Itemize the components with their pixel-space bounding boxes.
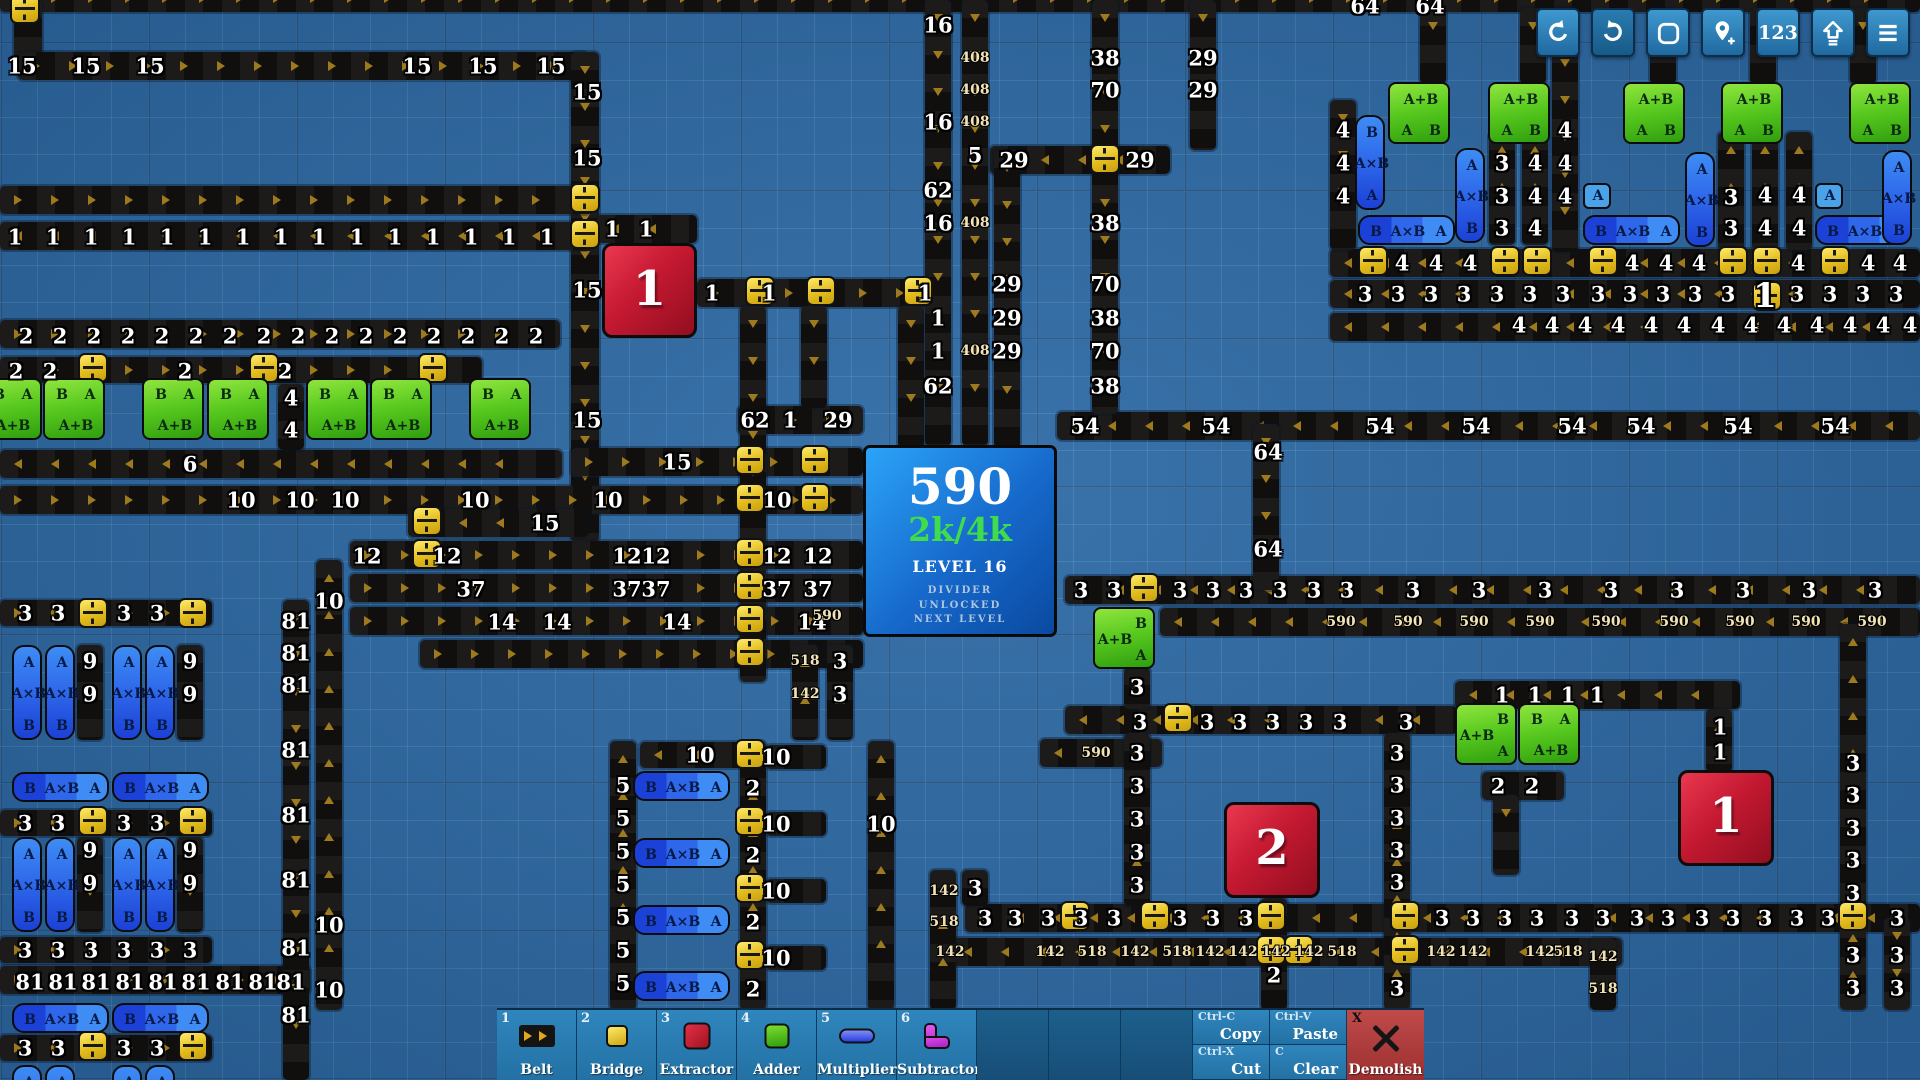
item-number: 3 <box>1530 908 1545 929</box>
belt-arrow-icon <box>828 0 836 3</box>
adder-machine[interactable]: BAA+B <box>1518 703 1580 765</box>
multiplier-machine[interactable]: BA×BA <box>633 971 730 1001</box>
tool-subtractor[interactable]: 6Subtractor <box>897 1010 977 1080</box>
belt[interactable] <box>801 306 827 408</box>
port-label: B <box>1696 225 1708 241</box>
belt-arrow-icon <box>1359 617 1367 627</box>
belt-arrow-icon <box>1848 934 1858 942</box>
item-number: 81 <box>281 611 310 632</box>
item-number: 3 <box>1790 908 1805 929</box>
item-number: 29 <box>999 150 1028 171</box>
item-number: 10 <box>593 490 622 511</box>
item-number: 3 <box>18 813 33 834</box>
waypoint-icon <box>1710 19 1737 46</box>
item-number: 590 <box>1525 615 1554 629</box>
item-number: 3 <box>1846 883 1861 904</box>
port-label: B <box>1135 616 1147 632</box>
multiplier-machine[interactable]: BA×BA <box>12 1003 109 1033</box>
belt-arrow-icon <box>508 649 516 659</box>
item-number: 37 <box>456 579 485 600</box>
multiplier-machine[interactable]: AA×BB <box>45 1065 75 1080</box>
item-number: 1 <box>274 227 289 248</box>
tool-belt[interactable]: 1Belt <box>497 1010 577 1080</box>
item-number: 81 <box>281 675 310 696</box>
belt-arrow-icon <box>767 649 775 659</box>
item-number: 3 <box>968 878 983 899</box>
item-number: 4 <box>1903 315 1918 336</box>
belt-arrow-icon <box>1753 0 1761 3</box>
port-label: B <box>1370 224 1382 240</box>
multiplier-machine[interactable]: BA×BA <box>1583 215 1680 245</box>
item-number: 142 <box>1035 945 1064 959</box>
item-number: 3 <box>1406 580 1421 601</box>
item-number: 518 <box>1162 945 1191 959</box>
item-number: 2 <box>325 326 340 347</box>
extractor-machine[interactable]: 2 <box>1224 802 1320 898</box>
adder-machine[interactable]: BAA+B <box>469 378 531 440</box>
item-number: 1 <box>705 283 720 304</box>
port-label: A <box>90 1012 101 1028</box>
cut-button[interactable]: Ctrl-XCut <box>1193 1045 1270 1080</box>
item-number: 4 <box>1463 253 1478 274</box>
belt-arrow-icon <box>1261 475 1271 483</box>
multiplier-icon <box>839 1029 875 1044</box>
belt-arrow-icon <box>586 550 594 560</box>
belt-arrow-icon <box>1515 421 1523 431</box>
belt[interactable] <box>1420 8 1446 84</box>
demolish-button[interactable]: XDemolish <box>1347 1010 1424 1080</box>
bridge[interactable] <box>1090 144 1120 174</box>
belt-arrow-icon <box>273 495 281 505</box>
item-number: 3 <box>1890 945 1905 966</box>
multiplier-machine[interactable]: AA×BB <box>1455 148 1485 243</box>
bridge[interactable] <box>806 276 836 306</box>
bridge[interactable] <box>412 506 442 536</box>
port-tile[interactable]: A <box>1583 183 1611 209</box>
belt[interactable] <box>994 150 1020 448</box>
multiplier-machine[interactable]: AA×BB <box>1685 152 1715 247</box>
item-number: 590 <box>812 609 841 623</box>
belt-arrow-icon <box>512 583 520 593</box>
belt-arrow-icon <box>88 459 96 469</box>
belt-arrow-icon <box>1404 421 1412 431</box>
belt[interactable] <box>316 560 342 1010</box>
multiplier-machine[interactable]: BA×BA <box>112 772 209 802</box>
bridge[interactable] <box>1256 901 1286 931</box>
item-number: 15 <box>71 56 100 77</box>
belt-arrow-icon <box>680 0 688 3</box>
bridge[interactable] <box>1752 246 1782 276</box>
port-label: A <box>1498 744 1509 760</box>
item-number: 81 <box>281 870 310 891</box>
belt-arrow-icon <box>1642 0 1650 3</box>
belt[interactable] <box>868 741 894 1010</box>
port-label: A+B <box>1737 92 1771 108</box>
item-number: 3 <box>1846 945 1861 966</box>
item-number: 54 <box>1820 416 1849 437</box>
multiplier-machine[interactable]: BA×BA <box>12 772 109 802</box>
multiplier-machine[interactable]: AA×BB <box>145 1065 175 1080</box>
item-number: 81 <box>281 1005 310 1026</box>
adder-machine[interactable]: BAA+B <box>207 378 269 440</box>
bridge[interactable] <box>78 598 108 628</box>
belt-arrow-icon <box>654 750 662 760</box>
item-number: 3 <box>1466 908 1481 929</box>
numbers-button[interactable]: 123 <box>1756 8 1800 57</box>
item-number: 9 <box>183 684 198 705</box>
belt-arrow-icon <box>1580 690 1588 700</box>
hub-stored-value: 590 <box>866 462 1054 512</box>
belt-arrow-icon <box>495 0 503 3</box>
port-label: A <box>57 847 68 863</box>
tool-adder[interactable]: 4Adder <box>737 1010 817 1080</box>
extractor-machine[interactable]: 1 <box>602 243 697 338</box>
item-number: 12 <box>612 546 641 567</box>
item-number: 3 <box>18 603 33 624</box>
bridge[interactable] <box>570 219 600 249</box>
bridge[interactable] <box>78 806 108 836</box>
adder-machine[interactable]: A+BBA <box>1093 607 1155 669</box>
belt-arrow-icon <box>88 195 96 205</box>
belt-arrow-icon <box>876 755 886 763</box>
belt[interactable] <box>0 450 562 478</box>
belt[interactable] <box>1190 0 1216 150</box>
belt-arrow-icon <box>906 394 916 402</box>
multiplier-machine[interactable]: BA×BA <box>112 1003 209 1033</box>
multiplier-machine[interactable]: BA×BA <box>633 771 730 801</box>
multiplier-machine[interactable]: AA×BB <box>112 1065 142 1080</box>
port-label: B <box>56 718 68 734</box>
belt-arrow-icon <box>1418 322 1426 332</box>
item-number: 590 <box>1393 615 1422 629</box>
item-number: 3 <box>1239 580 1254 601</box>
item-number: 81 <box>15 972 44 993</box>
item-number: 142 <box>790 687 819 701</box>
belt-arrow-icon <box>1418 258 1426 268</box>
bridge[interactable] <box>1390 901 1420 931</box>
belt-arrow-icon <box>549 583 557 593</box>
tool-bridge[interactable]: 2Bridge <box>577 1010 657 1080</box>
item-number: 1 <box>464 227 479 248</box>
multiplier-machine[interactable]: BA×BA <box>633 905 730 935</box>
bridge[interactable] <box>1129 573 1159 603</box>
tool-label: Belt <box>497 1062 576 1078</box>
action-label: Cut <box>1231 1060 1261 1078</box>
adder-machine[interactable]: BAA+B <box>370 378 432 440</box>
item-number: 4 <box>1810 315 1825 336</box>
multiplier-machine[interactable]: AA×BB <box>12 645 42 740</box>
item-number: 4 <box>1792 218 1807 239</box>
belt-arrow-icon <box>401 616 409 626</box>
menu-button[interactable] <box>1866 8 1910 57</box>
bridge[interactable] <box>1140 901 1170 931</box>
belt-arrow-icon <box>580 436 590 444</box>
bridge[interactable] <box>1588 246 1618 276</box>
bridge[interactable] <box>735 483 765 513</box>
port-label: A <box>57 655 68 671</box>
belt-arrow-icon <box>458 0 466 3</box>
port-label: A+B <box>223 418 257 434</box>
belt-arrow-icon <box>1100 199 1110 207</box>
belt-arrow-icon <box>1679 0 1687 3</box>
item-number: 3 <box>1424 284 1439 305</box>
tool-multiplier[interactable]: 5Multiplier <box>817 1010 897 1080</box>
copy-button[interactable]: Ctrl-CCopy <box>1193 1010 1270 1045</box>
multiplier-machine[interactable]: BA×BA <box>1358 215 1455 245</box>
multiplier-machine[interactable]: BA×BA <box>633 838 730 868</box>
hotkey-label: 4 <box>741 1011 750 1026</box>
port-label: A <box>1825 188 1836 204</box>
item-number: 54 <box>1723 416 1752 437</box>
item-number: 29 <box>992 274 1021 295</box>
belt-arrow-icon <box>1492 322 1500 332</box>
bridge[interactable] <box>735 571 765 601</box>
item-number: 3 <box>150 940 165 961</box>
adder-machine[interactable]: BAA+B <box>306 378 368 440</box>
bridge[interactable] <box>735 604 765 634</box>
belt-arrow-icon <box>532 495 540 505</box>
bridge[interactable] <box>1490 246 1520 276</box>
item-number: 4 <box>1611 315 1626 336</box>
extractor-icon <box>683 1023 710 1050</box>
item-number: 1 <box>84 227 99 248</box>
port-label: A×B <box>1685 193 1719 209</box>
bridge[interactable] <box>1358 246 1388 276</box>
belt-arrow-icon <box>1211 617 1219 627</box>
item-number: 4 <box>1336 153 1351 174</box>
belt-arrow-icon <box>1716 0 1724 3</box>
bridge[interactable] <box>570 183 600 213</box>
item-number: 590 <box>1659 615 1688 629</box>
belt[interactable] <box>18 52 588 80</box>
item-number: 3 <box>1206 580 1221 601</box>
empty-tool-slot[interactable] <box>977 1010 1049 1080</box>
tool-extractor[interactable]: 3Extractor <box>657 1010 737 1080</box>
belt-arrow-icon <box>1566 258 1574 268</box>
empty-tool-slot[interactable] <box>1121 1010 1193 1080</box>
belt-arrow-icon <box>1002 238 1012 246</box>
select-button[interactable] <box>1646 8 1690 57</box>
port-label: A <box>124 1075 135 1080</box>
port-label: A+B <box>1460 728 1494 744</box>
belt-arrow-icon <box>1848 712 1858 720</box>
item-number: 3 <box>1130 875 1145 896</box>
item-number: 2 <box>121 326 136 347</box>
item-number: 62 <box>923 180 952 201</box>
belt[interactable] <box>350 607 863 635</box>
belt[interactable] <box>1065 576 1920 604</box>
hotkey-label: 6 <box>901 1011 910 1026</box>
belt-arrow-icon <box>586 583 594 593</box>
bridge[interactable] <box>1718 246 1748 276</box>
item-number: 1 <box>388 227 403 248</box>
belt[interactable] <box>1493 795 1519 875</box>
item-number: 15 <box>468 56 497 77</box>
belt-arrow-icon <box>324 759 334 767</box>
bridge[interactable] <box>10 0 40 24</box>
item-number: 10 <box>314 915 343 936</box>
redo-button[interactable] <box>1591 8 1635 57</box>
belt-arrow-icon <box>1198 14 1208 22</box>
belt-arrow-icon <box>933 88 943 96</box>
item-number: 3 <box>51 813 66 834</box>
belt-arrow-icon <box>1507 617 1515 627</box>
hotkey-label: 2 <box>581 1011 590 1026</box>
belt-arrow-icon <box>1344 322 1352 332</box>
item-number: 4 <box>1512 315 1527 336</box>
adder-machine[interactable]: A+BAB <box>1849 82 1911 144</box>
extractor-machine[interactable]: 1 <box>1678 770 1774 866</box>
item-number: 3 <box>1307 580 1322 601</box>
port-label: A <box>22 387 33 403</box>
belt-arrow-icon <box>236 365 244 375</box>
item-number: 3 <box>1130 743 1145 764</box>
item-number: 518 <box>1588 982 1617 996</box>
paste-button[interactable]: Ctrl-VPaste <box>1270 1010 1347 1045</box>
bridge[interactable] <box>178 598 208 628</box>
bridge[interactable] <box>800 483 830 513</box>
multiplier-machine[interactable]: AA×BB <box>12 837 42 932</box>
bridge[interactable] <box>1390 935 1420 965</box>
item-number: 37 <box>612 579 641 600</box>
belt-arrow-icon <box>618 755 628 763</box>
bridge[interactable] <box>1163 703 1193 733</box>
multiplier-machine[interactable]: AA×BB <box>112 645 142 740</box>
bridge[interactable] <box>800 445 830 475</box>
multiplier-machine[interactable]: AA×BB <box>145 837 175 932</box>
item-number: 81 <box>48 972 77 993</box>
belt-arrow-icon <box>970 384 980 392</box>
bridge[interactable] <box>735 637 765 667</box>
adder-machine[interactable]: A+BAB <box>1488 82 1550 144</box>
belt-arrow-icon <box>14 195 22 205</box>
item-number: 2 <box>155 326 170 347</box>
undo-icon <box>1545 20 1571 46</box>
multiplier-machine[interactable]: BA×BA <box>1355 115 1385 210</box>
port-label: A×B <box>112 686 146 702</box>
belt-arrow-icon <box>273 459 281 469</box>
belt[interactable] <box>898 306 924 448</box>
belt-arrow-icon <box>876 792 886 800</box>
belt-arrow-icon <box>970 236 980 244</box>
hub[interactable]: 590 2k/4k LEVEL 16 DIVIDER UNLOCKED NEXT… <box>863 445 1057 637</box>
bridge[interactable] <box>78 1031 108 1061</box>
belt-arrow-icon <box>970 14 980 22</box>
adder-machine[interactable]: A+BAB <box>1721 82 1783 144</box>
belt-arrow-icon <box>125 195 133 205</box>
empty-tool-slot[interactable] <box>1049 1010 1121 1080</box>
multiplier-machine[interactable]: AA×BB <box>45 645 75 740</box>
item-number: 3 <box>1273 580 1288 601</box>
belt-arrow-icon <box>1645 913 1653 923</box>
belt-arrow-icon <box>310 195 318 205</box>
adder-machine[interactable]: A+BAB <box>1623 82 1685 144</box>
adder-machine[interactable]: BAA+B <box>0 378 42 440</box>
port-label: B <box>123 718 135 734</box>
bridge[interactable] <box>1820 246 1850 276</box>
item-number: 3 <box>1008 908 1023 929</box>
belt-arrow-icon <box>586 616 594 626</box>
item-number: 3 <box>1721 284 1736 305</box>
undo-button[interactable] <box>1536 8 1580 57</box>
adder-machine[interactable]: BAA+B <box>142 378 204 440</box>
redo-icon <box>1600 20 1626 46</box>
bridge[interactable] <box>178 1031 208 1061</box>
belt-arrow-icon <box>697 550 705 560</box>
multiplier-machine[interactable]: AA×BB <box>1882 150 1912 245</box>
belt-arrow-icon <box>324 685 334 693</box>
port-label: A <box>1894 160 1905 176</box>
item-number: 15 <box>135 56 164 77</box>
item-number: 6 <box>183 454 198 475</box>
belt-arrow-icon <box>1248 617 1256 627</box>
belt[interactable] <box>0 186 590 214</box>
port-label: B <box>124 781 136 797</box>
hotkey-label: 1 <box>501 1011 510 1026</box>
belt-arrow-icon <box>217 61 225 71</box>
waypoint-button[interactable] <box>1701 8 1745 57</box>
belt-arrow-icon <box>199 195 207 205</box>
tool-label: Bridge <box>577 1062 656 1078</box>
multiplier-machine[interactable]: AA×BB <box>12 1065 42 1080</box>
bridge[interactable] <box>1522 246 1552 276</box>
port-label: B <box>24 1012 36 1028</box>
adder-machine[interactable]: A+BAB <box>1388 82 1450 144</box>
bridge[interactable] <box>1838 901 1868 931</box>
adder-machine[interactable]: A+BBA <box>1455 703 1517 765</box>
item-number: 518 <box>1553 945 1582 959</box>
port-label: A×B <box>45 878 79 894</box>
port-label: B <box>1529 123 1541 139</box>
item-number: 3 <box>18 940 33 961</box>
item-number: 70 <box>1090 80 1119 101</box>
item-number: 518 <box>1327 945 1356 959</box>
item-number: 2 <box>1267 965 1282 986</box>
belt-arrow-icon <box>291 725 301 733</box>
item-number: 38 <box>1090 213 1119 234</box>
adder-machine[interactable]: BAA+B <box>43 378 105 440</box>
item-number: 3 <box>1736 580 1751 601</box>
clear-button[interactable]: CClear <box>1270 1045 1347 1080</box>
multiplier-machine[interactable]: AA×BB <box>112 837 142 932</box>
port-tile[interactable]: A <box>1815 183 1843 209</box>
belt-arrow-icon <box>1100 236 1110 244</box>
item-number: 1 <box>639 219 654 240</box>
item-number: 518 <box>1077 945 1106 959</box>
bridge[interactable] <box>735 445 765 475</box>
item-number: 62 <box>740 410 769 431</box>
port-label: B <box>24 781 36 797</box>
belt-arrow-icon <box>438 583 446 593</box>
port-label: B <box>645 847 657 863</box>
item-number: 3 <box>1538 580 1553 601</box>
belt[interactable] <box>0 320 560 348</box>
port-label: A+B <box>1639 92 1673 108</box>
belt-arrow-icon <box>1501 809 1511 817</box>
port-label: A <box>157 847 168 863</box>
belt-arrow-icon <box>865 0 873 3</box>
bridge[interactable] <box>178 806 208 836</box>
multiplier-machine[interactable]: AA×BB <box>45 837 75 932</box>
upgrade-button[interactable] <box>1811 8 1855 57</box>
multiplier-machine[interactable]: AA×BB <box>145 645 175 740</box>
item-number: 590 <box>1591 615 1620 629</box>
port-label: B <box>124 1012 136 1028</box>
bridge[interactable] <box>735 538 765 568</box>
port-label: A×B <box>145 781 179 797</box>
belt-arrow-icon <box>697 616 705 626</box>
belt-arrow-icon <box>475 550 483 560</box>
